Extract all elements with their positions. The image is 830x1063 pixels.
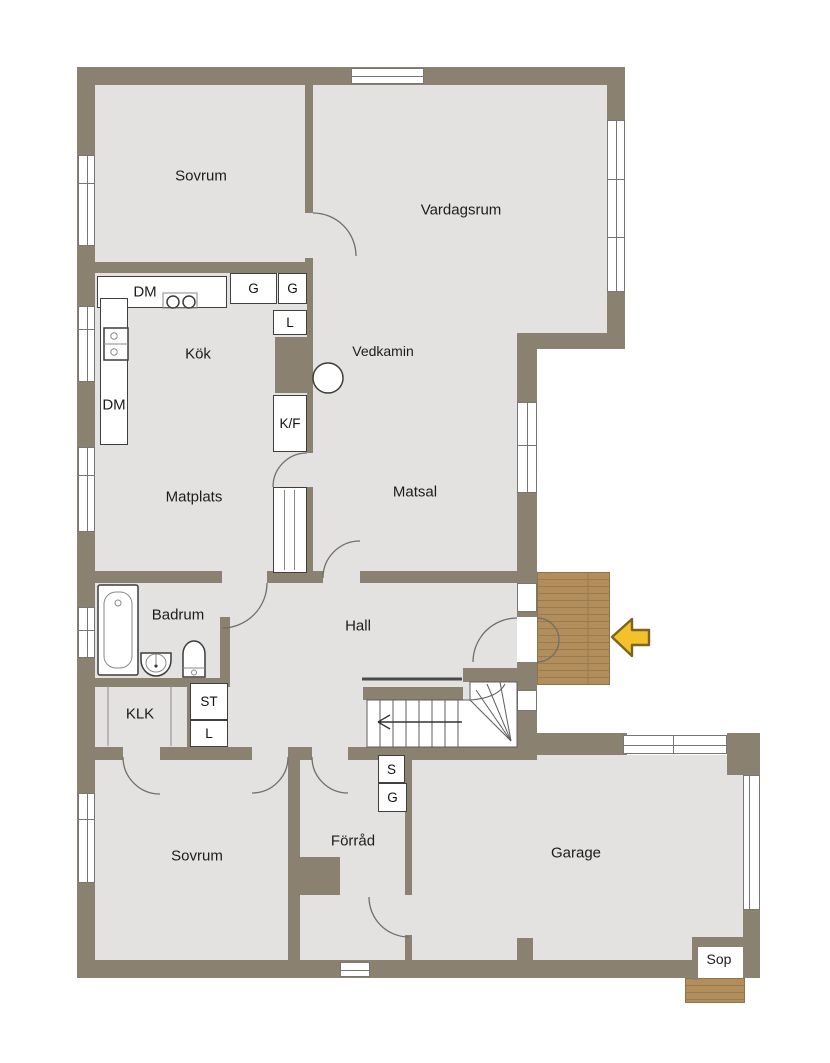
window-right-matsal	[517, 402, 537, 493]
cabinet-label: G	[248, 281, 259, 296]
window-bottom	[340, 962, 370, 977]
room-label-matsal: Matsal	[393, 484, 437, 501]
wall-stairs-top	[363, 687, 463, 700]
wall-forrad-right	[405, 755, 412, 895]
entry-door-opening	[517, 617, 537, 662]
window-left-2	[78, 306, 95, 382]
wall-forrad-right-lower	[405, 935, 412, 962]
window-right-hall	[517, 583, 537, 612]
window-mullion	[87, 608, 88, 657]
shelf-divider	[284, 490, 285, 570]
window-right-stairs	[517, 690, 537, 711]
entrance-arrow-icon	[612, 619, 649, 656]
wall-garage-stub	[517, 938, 533, 962]
window-mullion	[79, 819, 94, 820]
floor-upper	[95, 85, 607, 348]
cabinet-label: G	[387, 790, 398, 805]
cabinet-label: ST	[200, 694, 217, 709]
wall-sovrum-vardagsrum-stub	[305, 258, 313, 273]
kitchen-counter-left	[100, 298, 128, 445]
wall-badrum-right	[220, 617, 230, 687]
cabinet-label: S	[387, 762, 396, 777]
cabinet-s-forrad: S	[378, 755, 405, 783]
window-left-3	[78, 447, 95, 532]
window-mullion	[624, 745, 726, 746]
wall-sovrum-kitchen	[95, 262, 313, 273]
door-opening-sovrum	[252, 747, 288, 760]
cabinet-l-kitchen: L	[273, 310, 307, 335]
window-right-vardagsrum	[607, 120, 625, 292]
cabinet-shelf	[273, 487, 307, 573]
room-label-kok: Kök	[185, 346, 211, 363]
window-left-1	[78, 155, 95, 246]
window-mullion	[87, 156, 88, 245]
sop-steps	[685, 978, 745, 1003]
floor-plan: G G L K/F ST L S G	[0, 0, 830, 1063]
room-label-sovrum-bottom: Sovrum	[171, 848, 223, 865]
chimney-kitchen	[275, 337, 307, 393]
wall-kitchen-matsal	[307, 273, 313, 453]
window-mullion	[79, 630, 94, 631]
room-label-hall: Hall	[345, 618, 371, 635]
door-opening-forrad	[312, 747, 348, 760]
wall-step	[517, 333, 625, 349]
window-mullion	[87, 307, 88, 381]
cabinet-st: ST	[190, 683, 228, 720]
door-opening-badrum	[222, 571, 267, 583]
cabinet-label: L	[286, 315, 294, 330]
cabinet-label: L	[205, 726, 213, 741]
window-mullion	[79, 183, 94, 184]
cabinet-kf: K/F	[273, 395, 307, 452]
room-label-vedkamin: Vedkamin	[352, 343, 413, 359]
window-mullion	[79, 475, 94, 476]
room-label-forrad: Förråd	[331, 833, 375, 850]
floor-bedroom-band	[95, 758, 412, 962]
wall-garage-top	[537, 733, 627, 755]
window-mullion	[616, 121, 617, 291]
room-label-vardagsrum: Vardagsrum	[421, 202, 502, 219]
window-mullion	[608, 179, 624, 180]
window-mullion	[341, 970, 369, 971]
wall-sop-top	[692, 937, 743, 947]
cabinet-l-hall: L	[190, 720, 228, 747]
cabinet-g-forrad: G	[378, 783, 407, 812]
cabinet-label: K/F	[279, 416, 300, 431]
window-mullion	[352, 76, 423, 77]
cabinet-g2: G	[278, 273, 307, 304]
room-label-sovrum-top: Sovrum	[175, 168, 227, 185]
window-mullion	[87, 448, 88, 531]
window-mullion	[518, 445, 536, 446]
wall-stairs-top-right	[463, 668, 517, 682]
wall-sovrum-vardagsrum	[305, 85, 313, 213]
door-opening-matsal	[323, 571, 360, 583]
window-mullion	[608, 237, 624, 238]
wall-garage-corner	[727, 733, 760, 775]
entrance-deck	[537, 572, 610, 685]
window-left-5	[78, 793, 95, 883]
room-label-sop: Sop	[707, 951, 732, 967]
wall-bottom	[77, 960, 698, 978]
window-mullion	[87, 794, 88, 882]
window-garage-top	[623, 735, 727, 754]
garage-door	[743, 775, 760, 910]
wall-kitchen-matsal-lower	[307, 487, 313, 573]
cabinet-label-dm-top: DM	[133, 284, 156, 301]
garage-door-panel	[749, 776, 750, 909]
door-opening-klk-sovrum	[123, 747, 160, 760]
window-top	[351, 68, 424, 84]
cabinet-g1: G	[230, 273, 277, 304]
room-label-klk: KLK	[126, 706, 154, 723]
window-mullion	[527, 403, 528, 492]
chimney-forrad	[300, 857, 340, 895]
room-label-badrum: Badrum	[152, 607, 205, 624]
room-label-garage: Garage	[551, 845, 601, 862]
wall-sovrum-forrad	[288, 758, 300, 960]
window-mullion	[79, 329, 94, 330]
cabinet-label: G	[287, 281, 298, 296]
shelf-divider	[294, 490, 295, 570]
window-left-4	[78, 607, 95, 658]
room-label-matplats: Matplats	[166, 489, 223, 506]
cabinet-label-dm-left: DM	[102, 397, 125, 414]
